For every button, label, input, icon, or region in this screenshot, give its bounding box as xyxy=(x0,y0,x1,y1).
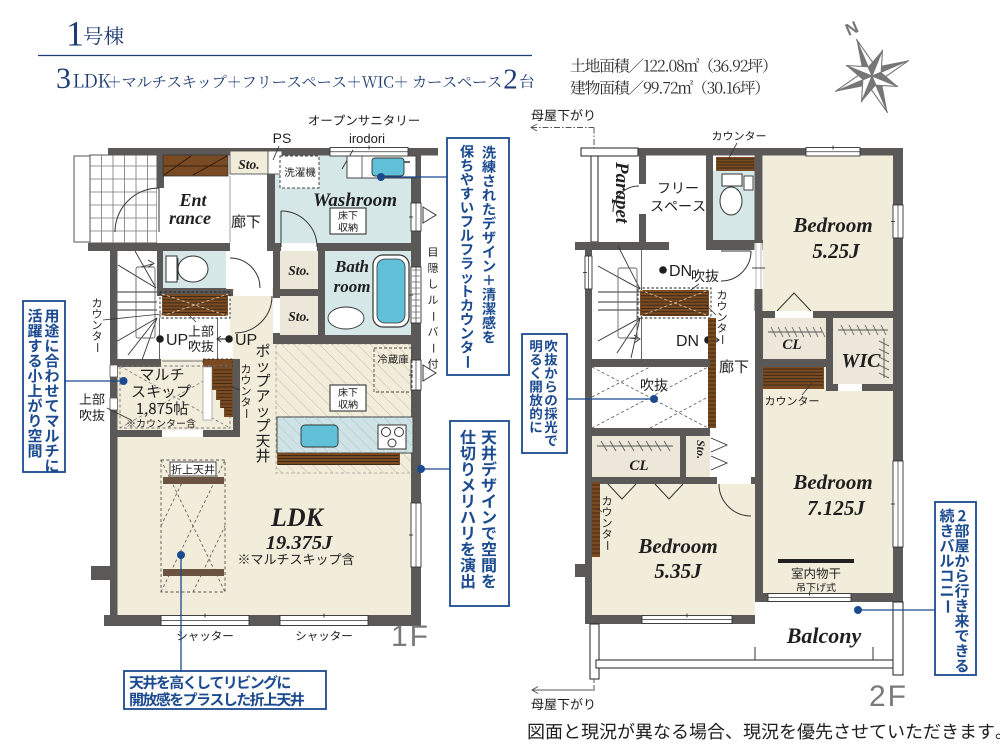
svg-text:room: room xyxy=(334,277,371,296)
svg-text:Bedroom: Bedroom xyxy=(792,213,872,237)
svg-text:UP: UP xyxy=(166,332,188,349)
svg-text:CL: CL xyxy=(782,337,801,353)
svg-text:Ent: Ent xyxy=(178,190,207,210)
svg-text:Bath: Bath xyxy=(334,257,369,276)
svg-text:WIC: WIC xyxy=(842,350,882,372)
svg-text:Balcony: Balcony xyxy=(786,623,862,648)
svg-text:Bedroom: Bedroom xyxy=(792,470,872,494)
svg-text:UP: UP xyxy=(235,332,257,349)
svg-text:irodori: irodori xyxy=(349,131,385,146)
svg-text:DN: DN xyxy=(676,333,699,350)
svg-text:1F: 1F xyxy=(391,620,430,653)
svg-text:LDK: LDK xyxy=(270,503,325,532)
svg-text:Sto.: Sto. xyxy=(238,157,259,172)
svg-text:rance: rance xyxy=(169,208,211,228)
svg-text:2: 2 xyxy=(503,64,518,96)
svg-text:3: 3 xyxy=(56,62,71,95)
svg-text:PS: PS xyxy=(273,130,292,146)
svg-text:5.25J: 5.25J xyxy=(812,239,861,263)
svg-text:Sto.: Sto. xyxy=(288,309,309,324)
svg-text:1: 1 xyxy=(66,14,84,54)
svg-text:DN: DN xyxy=(669,263,692,280)
svg-text:CL: CL xyxy=(629,458,648,474)
svg-text:Sto.: Sto. xyxy=(288,263,309,278)
svg-text:2F: 2F xyxy=(869,680,908,713)
svg-text:5.35J: 5.35J xyxy=(654,559,703,583)
svg-text:19.375J: 19.375J xyxy=(266,532,333,554)
svg-text:7.125J: 7.125J xyxy=(807,496,866,520)
svg-text:Sto.: Sto. xyxy=(694,440,708,459)
svg-text:Bedroom: Bedroom xyxy=(637,534,717,558)
